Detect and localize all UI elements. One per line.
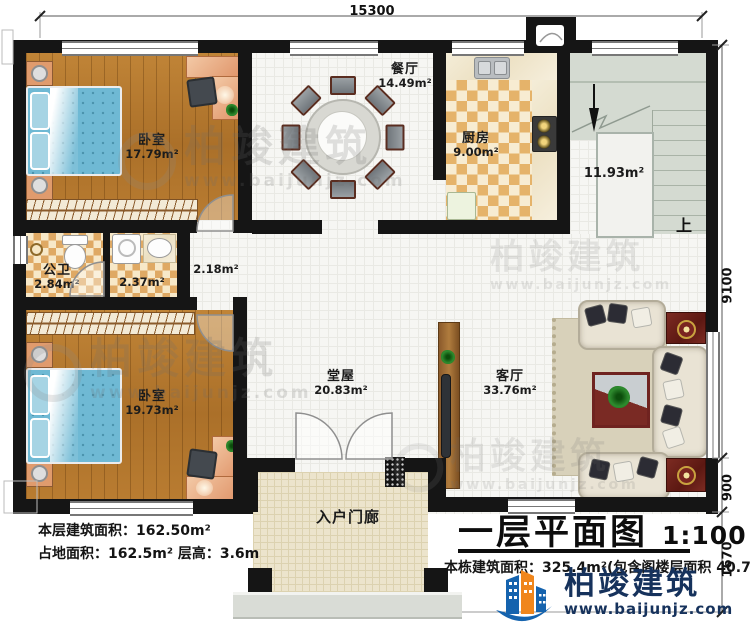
porch-step	[233, 592, 462, 619]
room-name: 堂屋	[286, 369, 396, 384]
room-label-bedroom2: 卧室 19.73m²	[97, 389, 207, 418]
floor-plan: 卧室 17.79m² 餐厅 14.49m² 厨房 9.00m² 11.93m² …	[0, 0, 750, 628]
brand-logo: 柏竣建筑 www.baijunjz.com	[488, 560, 733, 626]
burner-icon	[537, 119, 551, 133]
cushion-icon	[662, 378, 685, 401]
stairs-up-label: 上	[676, 212, 692, 236]
porch-floor	[253, 472, 428, 592]
brand-url: www.baijunjz.com	[564, 600, 733, 618]
room-name: 厨房	[421, 131, 531, 146]
bedroom1-wardrobe	[26, 199, 198, 222]
room-label-kitchen: 厨房 9.00m²	[421, 131, 531, 160]
room-label-stairwell: 11.93m²	[559, 166, 669, 181]
washbasin-icon	[147, 238, 172, 258]
washing-machine-icon	[112, 234, 141, 264]
room-area: 11.93m²	[559, 166, 669, 181]
room-area: 9.00m²	[421, 146, 531, 160]
cushion-icon	[630, 306, 652, 328]
chair-icon	[386, 125, 405, 151]
washer-drum	[118, 239, 136, 257]
side-table-icon	[666, 312, 706, 344]
room-area: 20.83m²	[286, 384, 396, 398]
page-title: 一层平面图1:100	[458, 504, 747, 555]
brand-name: 柏竣建筑	[564, 568, 733, 601]
dimension-right-main: 9100	[721, 265, 736, 307]
plan-title: 一层平面图	[458, 513, 648, 553]
kitchen-sink-icon	[474, 57, 510, 79]
window	[70, 501, 193, 516]
sink-bowl	[478, 61, 491, 75]
wall-kitchen-stairs	[557, 53, 570, 234]
porch-column	[240, 458, 258, 512]
dimension-top: 15300	[332, 4, 412, 19]
cushion-icon	[612, 460, 634, 482]
wall-bedroom1-bottom	[13, 220, 197, 233]
computer-icon	[186, 76, 218, 108]
room-label-utility: 2.37m²	[87, 276, 197, 290]
room-name: 入户门廊	[293, 509, 403, 527]
chair-icon	[282, 125, 301, 151]
room-label-living: 客厅 33.76m²	[455, 369, 565, 398]
wall-bath-bottom	[13, 297, 197, 310]
sink-bowl	[494, 61, 507, 75]
cushion-icon	[607, 303, 628, 324]
wall-bedroom1-dining	[238, 40, 252, 233]
window	[706, 332, 720, 458]
lamp-icon	[31, 465, 48, 482]
stair-void	[596, 132, 654, 238]
shower-hose-icon	[30, 243, 43, 256]
blanket-fold	[50, 88, 78, 174]
lamp-icon	[31, 177, 48, 194]
pillow-icon	[30, 418, 50, 458]
blanket-fold	[50, 370, 78, 462]
plant-icon	[441, 350, 455, 364]
gold-ornament-icon	[677, 466, 696, 485]
site-note-line2: 占地面积：162.5m² 层高：3.6m	[38, 543, 259, 566]
plant-icon	[226, 104, 238, 116]
title-underline	[458, 549, 690, 553]
window	[592, 41, 678, 56]
nightstand-icon	[26, 61, 53, 86]
pillow-icon	[30, 375, 50, 415]
dimension-right-mid: 900	[721, 471, 736, 505]
desk-icon	[186, 56, 240, 78]
cushion-icon	[588, 458, 611, 481]
chair-icon	[330, 180, 356, 199]
room-area: 14.49m²	[350, 77, 460, 91]
site-notes: 本层建筑面积：162.50m² 占地面积：162.5m² 层高：3.6m	[38, 520, 259, 566]
wall-kitchen-bottom	[433, 220, 570, 234]
room-name: 餐厅	[350, 62, 460, 77]
room-area: 2.37m²	[87, 276, 197, 290]
desk-lamp-icon	[216, 86, 234, 104]
chimney-flue	[536, 25, 564, 46]
bed-icon	[26, 86, 122, 176]
stove-icon	[532, 116, 557, 152]
bedroom2-wardrobe	[26, 312, 195, 335]
desk-lamp-icon	[196, 480, 213, 496]
room-area: 19.73m²	[97, 404, 207, 418]
site-note-line1: 本层建筑面积：162.50m²	[38, 520, 259, 543]
plant-icon	[608, 386, 630, 408]
pillow-icon	[30, 132, 50, 170]
desk-icon	[186, 476, 240, 500]
dining-table-top	[317, 111, 367, 161]
computer-icon	[186, 448, 218, 480]
nightstand-icon	[26, 461, 53, 487]
room-name: 客厅	[455, 369, 565, 384]
porch-door-column	[385, 457, 405, 487]
room-label-hallway: 2.18m²	[161, 263, 271, 277]
room-label-dining: 餐厅 14.49m²	[350, 62, 460, 91]
brand-logo-icon	[488, 560, 560, 626]
room-label-porch: 入户门廊	[293, 509, 403, 527]
room-label-bedroom1: 卧室 17.79m²	[97, 133, 207, 162]
room-area: 33.76m²	[455, 384, 565, 398]
porch-column	[428, 458, 446, 512]
lamp-icon	[31, 65, 48, 82]
room-area: 17.79m²	[97, 148, 207, 162]
gold-ornament-icon	[677, 320, 696, 339]
window	[290, 41, 378, 56]
window	[13, 236, 28, 264]
fridge-icon	[447, 192, 476, 220]
pillow-icon	[30, 92, 50, 130]
window	[452, 41, 524, 56]
side-table-icon	[666, 458, 706, 492]
porch-column	[248, 568, 272, 592]
burner-icon	[537, 135, 551, 149]
room-area: 2.18m²	[161, 263, 271, 277]
wall-dining-bottom-left	[252, 220, 322, 234]
room-name: 卧室	[97, 389, 207, 404]
window	[62, 41, 198, 56]
room-label-hall: 堂屋 20.83m²	[286, 369, 396, 398]
plan-scale: 1:100	[662, 521, 747, 550]
nightstand-icon	[26, 342, 53, 368]
room-name: 卧室	[97, 133, 207, 148]
nightstand-icon	[26, 173, 53, 200]
lamp-icon	[31, 346, 48, 363]
wall-bedroom1-bottom-stub	[233, 220, 252, 233]
tv-icon	[441, 374, 451, 458]
